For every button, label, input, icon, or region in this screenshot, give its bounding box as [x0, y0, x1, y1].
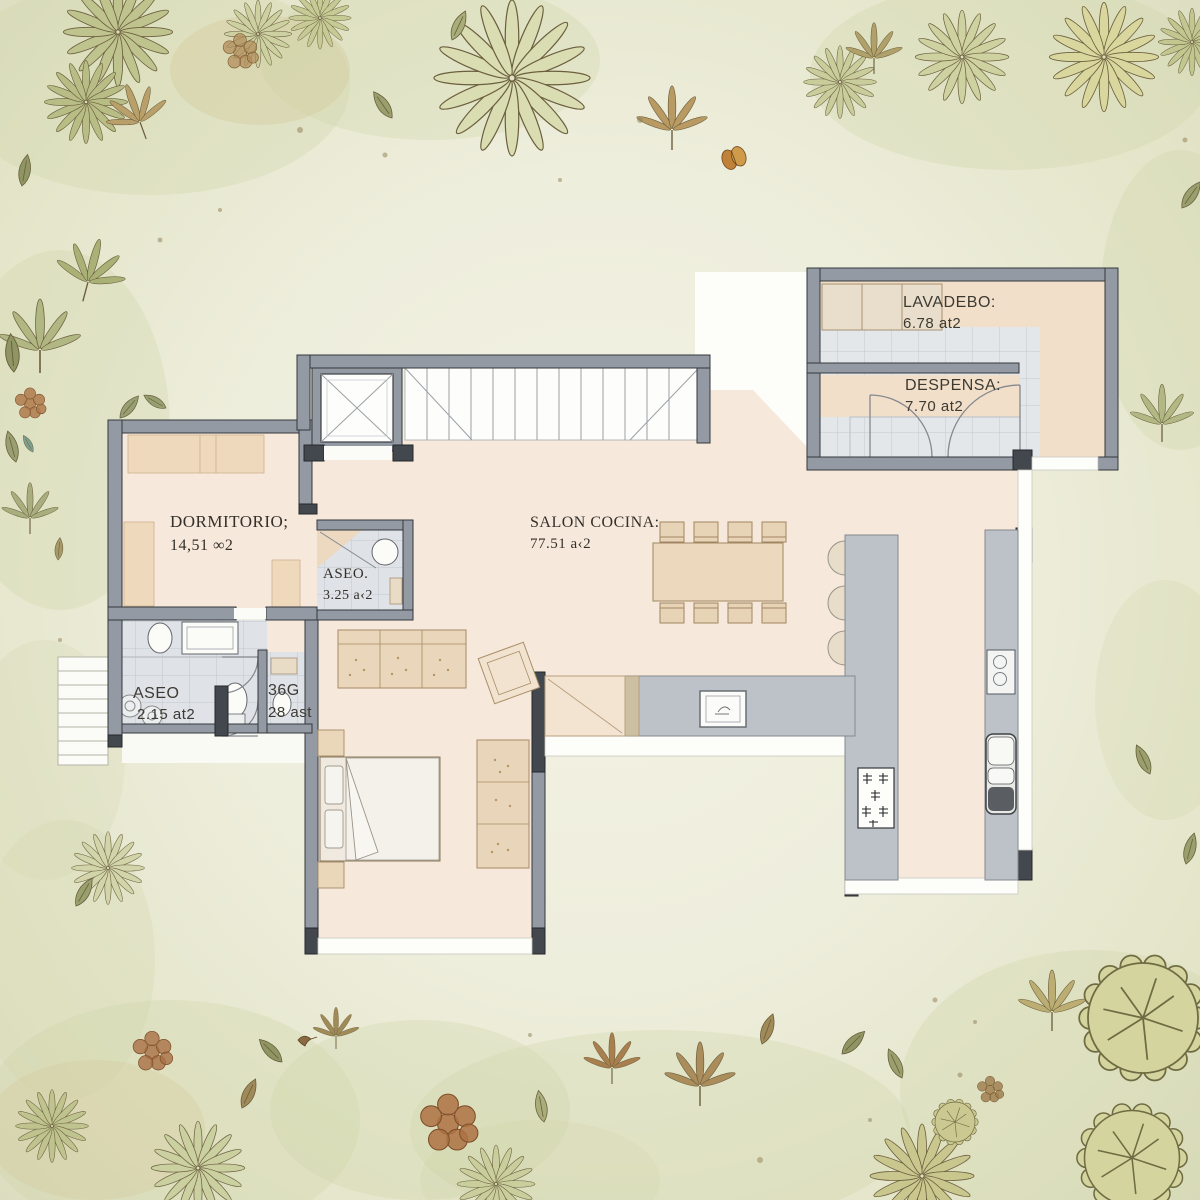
butterfly	[719, 144, 748, 171]
cooktop-sink-icon	[987, 650, 1015, 694]
maple-leaf	[636, 86, 709, 150]
appliance-counter	[985, 530, 1018, 880]
corner-cabinet	[545, 676, 625, 736]
wardrobe	[477, 740, 529, 868]
dormitorio-label: DORMITORIO;	[170, 512, 289, 531]
window-bedroom-south	[318, 938, 532, 954]
scene-svg: LAVADEBO: 6.78 at2 DESPENSA: 7.70 at2 DO…	[0, 0, 1200, 1200]
sofa	[338, 630, 466, 688]
cabinet-band	[272, 560, 300, 608]
kitchen-sink	[700, 691, 746, 727]
despensa-label: DESPENSA:	[905, 377, 1001, 394]
nightstand	[318, 730, 344, 756]
despensa-area: 7.70 at2	[905, 398, 963, 415]
bathtub	[182, 622, 238, 654]
exterior-steps	[58, 657, 108, 765]
window-salon-south	[545, 736, 845, 756]
salon-label: SALON COCINA:	[530, 514, 660, 531]
aseo-small-area: 3.25 a‹2	[323, 588, 373, 603]
dining-table	[653, 543, 783, 601]
kitchen-counter	[625, 676, 855, 736]
room36g-label: 36G	[268, 682, 300, 699]
floor-plan-canvas: LAVADEBO: 6.78 at2 DESPENSA: 7.70 at2 DO…	[0, 0, 1200, 1200]
fridge	[986, 734, 1016, 814]
dormitorio-area: 14,51 ∞2	[170, 537, 233, 554]
pillow	[325, 810, 343, 848]
bath-fixture	[390, 578, 402, 604]
utility-sill	[1032, 457, 1098, 470]
bed	[320, 757, 440, 861]
floor-kitchen-nook	[898, 676, 985, 880]
stairs	[405, 368, 697, 440]
building: LAVADEBO: 6.78 at2 DESPENSA: 7.70 at2 DO…	[58, 268, 1118, 954]
washbasin	[372, 539, 398, 565]
lavadero-label: LAVADEBO:	[903, 294, 996, 311]
aseo-area: 2.15 at2	[137, 706, 195, 723]
island-plaque	[858, 768, 894, 828]
wardrobe-band	[128, 435, 264, 473]
walkway	[122, 733, 312, 763]
sink-oval	[148, 623, 172, 653]
room36g-area: 28 ast	[268, 704, 312, 721]
dresser-band	[124, 522, 154, 606]
salon-area: 77.51 a‹2	[530, 536, 591, 552]
window-east	[1018, 470, 1032, 850]
shelf-36g	[271, 658, 297, 674]
pillow	[325, 766, 343, 804]
aseo-label: ASEO	[133, 685, 179, 702]
utility-right-band	[1040, 281, 1105, 457]
elevator	[312, 365, 402, 451]
lavadero-area: 6.78 at2	[903, 315, 961, 332]
aseo-small-label: ASEO.	[323, 566, 368, 582]
nightstand	[318, 862, 344, 888]
